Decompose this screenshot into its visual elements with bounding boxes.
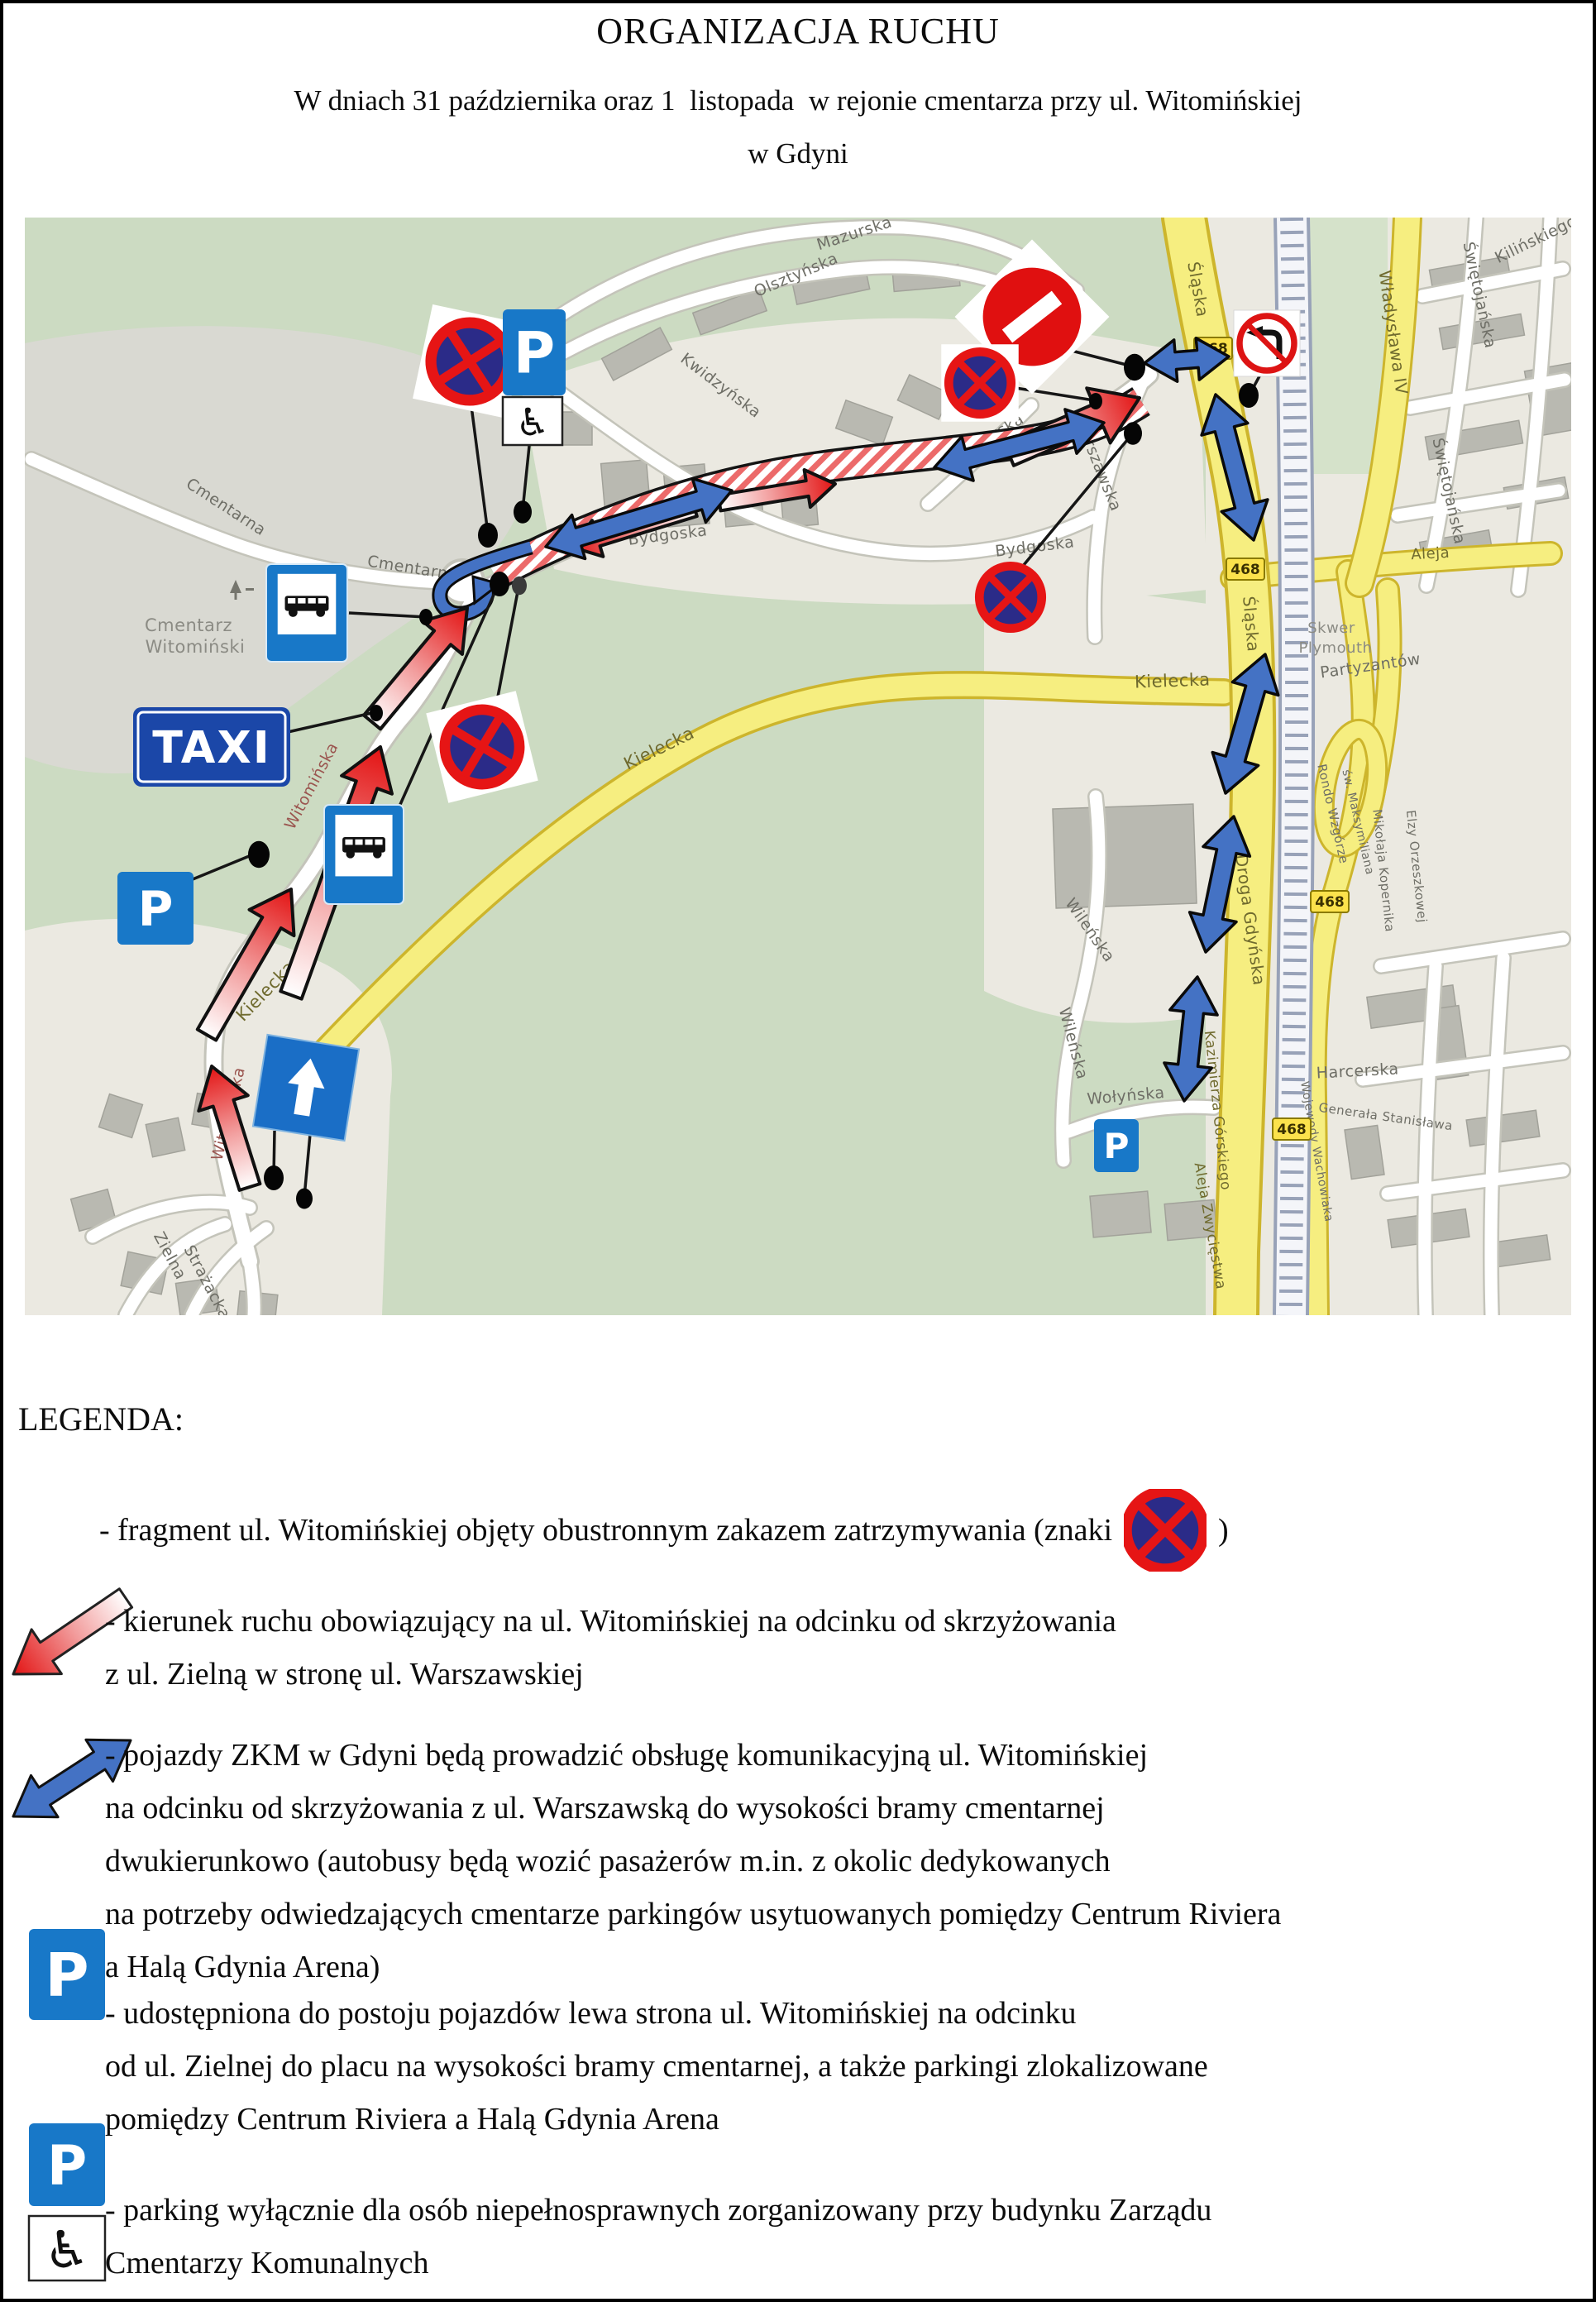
- legend-item-text: - parking wyłącznie dla osób niepełnospr…: [105, 2184, 1211, 2290]
- legend-heading: LEGENDA:: [18, 1400, 184, 1438]
- traffic-map: CmentarnaCmentarnaCmentarzWitomińskiWito…: [25, 218, 1571, 1315]
- anchor-dot: [419, 609, 432, 625]
- traffic-notice-page: { "title": { "line1": "ORGANIZACJA RUCHU…: [0, 0, 1596, 2302]
- parking-sign: P: [117, 872, 194, 945]
- road-468-badge: 468: [1226, 558, 1264, 580]
- street-label: Cmentarz: [145, 615, 232, 635]
- anchor-dot: [1239, 383, 1259, 408]
- anchor-dot: [248, 841, 270, 869]
- street-label: Plymouth: [1299, 639, 1373, 657]
- svg-text:♿: ♿: [44, 2219, 90, 2280]
- svg-text:♿: ♿: [515, 400, 550, 444]
- railway: [1291, 218, 1297, 1315]
- building: [146, 1117, 184, 1156]
- legend-parking-disabled-icon: P♿: [27, 2123, 107, 2283]
- page-subtitle-city: w Gdyni: [0, 137, 1596, 170]
- parking-sign: P: [503, 309, 566, 395]
- parking-sign: P: [1094, 1119, 1139, 1172]
- svg-text:468: 468: [1230, 562, 1260, 578]
- legend-item-text: - fragment ul. Witomińskiej objęty obust…: [99, 1512, 1112, 1548]
- page-title: ORGANIZACJA RUCHU: [0, 10, 1596, 52]
- building: [1345, 1126, 1384, 1180]
- building: [1053, 804, 1197, 908]
- no-stopping-sign: [979, 566, 1041, 628]
- no-left-turn-sign: [1234, 310, 1300, 376]
- legend-item-text: - udostępniona do postoju pojazdów lewa …: [105, 1987, 1208, 2146]
- building: [1090, 1191, 1151, 1237]
- parking-sign: P: [29, 1929, 105, 2020]
- anchor-dot: [1089, 393, 1102, 409]
- legend-item-text-suffix: ): [1218, 1512, 1229, 1548]
- road-468-badge: 468: [1273, 1118, 1311, 1140]
- one-way-sign: [253, 1035, 359, 1141]
- legend-no-stopping-icon: [1124, 1489, 1207, 1572]
- legend-item-text: - kierunek ruchu obowiązujący na ul. Wit…: [105, 1595, 1116, 1701]
- anchor-dot: [512, 577, 527, 596]
- svg-text:P: P: [45, 1941, 88, 2011]
- anchor-dot: [514, 500, 532, 524]
- street-label: Kielecka: [1135, 669, 1211, 692]
- anchor-dot: [490, 572, 509, 596]
- anchor-dot: [370, 705, 383, 721]
- svg-text:468: 468: [1315, 894, 1345, 911]
- svg-text:468: 468: [1277, 1122, 1307, 1138]
- anchor-dot: [296, 1189, 313, 1209]
- anchor-dot: [478, 523, 498, 548]
- street-label: Skwer: [1307, 620, 1355, 637]
- svg-text:P: P: [138, 881, 174, 937]
- anchor-dot: [264, 1165, 284, 1190]
- no-stopping-sign: [941, 344, 1018, 421]
- anchor-dot: [1124, 354, 1145, 381]
- legend-item-text: - pojazdy ZKM w Gdyni będą prowadzić obs…: [105, 1729, 1281, 1993]
- svg-text:P: P: [1104, 1126, 1130, 1166]
- svg-text:TAXI: TAXI: [152, 721, 271, 773]
- svg-text:P: P: [514, 320, 555, 386]
- bus-stop-sign: [324, 805, 404, 904]
- legend-parking-icon: P: [27, 1927, 107, 2022]
- taxi-sign: TAXI: [133, 707, 290, 787]
- street-label: Witomiński: [146, 637, 246, 657]
- page-subtitle: W dniach 31 października oraz 1 listopad…: [0, 84, 1596, 117]
- street-label: Aleja: [1411, 544, 1450, 563]
- bus-stop-sign: [266, 564, 347, 662]
- disabled-plate-sign: ♿: [29, 2216, 105, 2280]
- disabled-plate-sign: ♿: [503, 397, 562, 445]
- road-468-badge: 468: [1311, 891, 1349, 912]
- anchor-dot: [1124, 422, 1142, 445]
- parking-sign: P: [29, 2123, 105, 2206]
- svg-text:P: P: [47, 2134, 87, 2198]
- no-stopping-sign: [1126, 1491, 1204, 1569]
